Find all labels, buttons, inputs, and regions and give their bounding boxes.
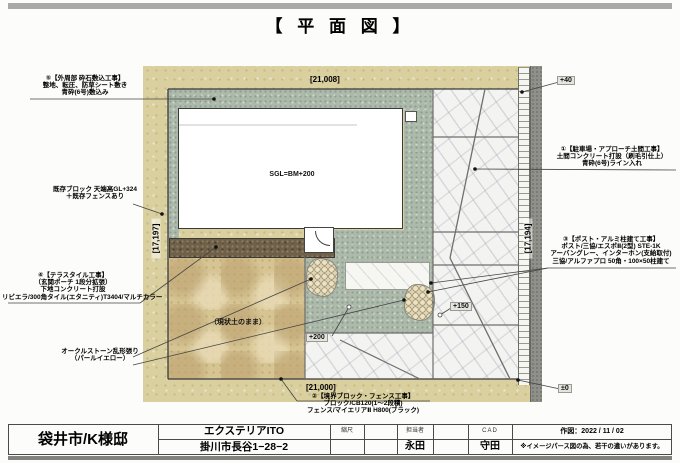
annotation-terrace-tile: ④【テラスタイル工事】 （玄関ポーチ 1段分拡張） 下地コンクリート打設 リビエ… (2, 272, 144, 301)
door-swing-arc (315, 231, 330, 246)
annotation-line: 青砕(6号)ライン入れ (547, 160, 677, 167)
scale-label: 縮尺 (330, 424, 364, 439)
annotation-line: 下地コンクリート打設 (2, 286, 144, 293)
annotation-line: 三協/アルファプロ 50角・100×50柱建て (542, 258, 680, 265)
dim-top: [21,008] (310, 75, 340, 84)
annotation-line: フェンス/マイエリアⅡ H800(ブラック) (297, 407, 429, 414)
house-level-label: SGL=BM+200 (262, 171, 322, 178)
annotation-line: 青砕(6号)敷込み (15, 89, 155, 96)
annotation-post-aluminum: ③【ポスト・アルミ柱建て工事】 ポスト/三協/エスポⅡ(2型) STE-1K ア… (542, 236, 680, 265)
annotation-line: ＋既存フェンスあり (35, 193, 155, 200)
level-zero: ±0 (558, 384, 572, 393)
level-plus150: +150 (450, 302, 472, 311)
top-divider-bar (8, 3, 672, 9)
cad-name: 守田 (468, 439, 512, 455)
dim-left: [17,197] (152, 219, 161, 259)
annotation-boundary-fence: ②【境界ブロック・フェンス工事】 ブロック/CB120(1〜2段積) フェンス/… (297, 393, 429, 415)
gravel-band-right (404, 110, 433, 230)
dim-bottom: [21,000] (306, 383, 336, 392)
bottom-divider-bar (8, 456, 672, 460)
gravel-band-top (168, 89, 433, 110)
house-footprint (178, 108, 403, 229)
annotation-line: リビエラ/300角タイル(エタニティ)T3404/マルチカラー (2, 294, 144, 301)
driveway-concrete (433, 89, 518, 379)
company-address: 掛川市長谷1−28−2 (158, 439, 330, 455)
soil-note: （現状土のまま） (188, 317, 288, 327)
annotation-existing-block: 既存ブロック 天端高GL+324 ＋既存フェンスあり (35, 186, 155, 200)
drawing-date: 作図：2022 / 11 / 02 (512, 424, 672, 439)
cad-label: CAD (468, 424, 512, 439)
dim-right: [17,194] (524, 219, 533, 259)
level-plus40: +40 (557, 76, 575, 85)
crazy-paving-stone-right (404, 284, 435, 321)
client-name: 袋井市/K様邸 (8, 424, 158, 455)
entrance-porch (304, 227, 334, 253)
site-plan-page: 【 平 面 図 】 SGL=BM+200 (0, 0, 680, 463)
annotation-perimeter-gravel: ⑤【外周部 砕石敷込工事】 整地、転圧、防草シート敷き 青砕(6号)敷込み (15, 75, 155, 97)
annotation-ocher-stone: オークルストーン乱形張り （パールイエロー） (40, 348, 160, 362)
annotation-line: （パールイエロー） (40, 355, 160, 362)
disclaimer-note: ※イメージパース図の為、若干の違いがあります。 (512, 439, 672, 455)
crazy-paving-stone-left (306, 258, 338, 297)
staff-label: 担当者 (397, 424, 433, 439)
page-title: 【 平 面 図 】 (0, 12, 680, 37)
level-plus200: +200 (306, 333, 328, 342)
annotation-line: アーバングレー、インターホン(支給取付) (542, 250, 680, 257)
equipment-box (405, 111, 417, 122)
company-name: エクステリアITO (158, 424, 330, 439)
staff-name: 永田 (397, 439, 433, 455)
annotation-parking-approach: ①【駐車場・アプローチ土間工事】 土間コンクリート打設（刷毛引仕上） 青砕(6号… (547, 146, 677, 168)
